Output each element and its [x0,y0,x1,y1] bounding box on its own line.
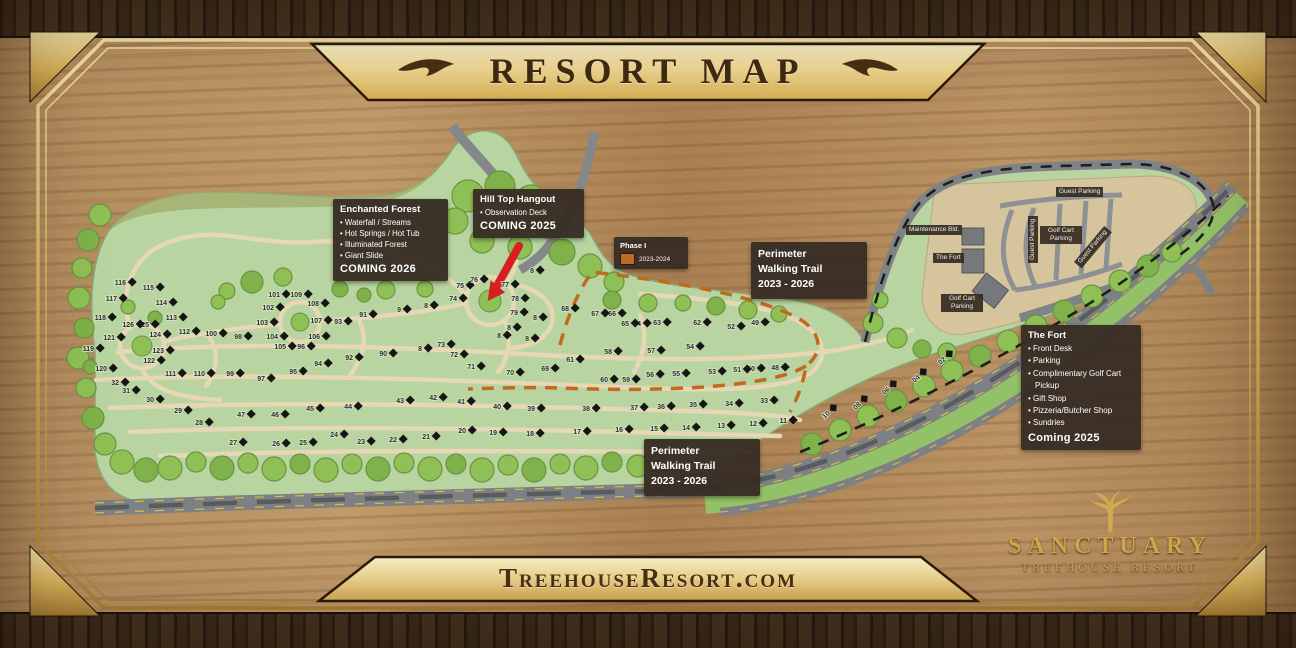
svg-text:123: 123 [152,348,164,355]
tree-icon [77,229,99,251]
svg-text:36: 36 [657,404,665,411]
svg-text:93: 93 [334,319,342,326]
svg-text:9: 9 [397,307,401,314]
svg-text:99: 99 [226,371,234,378]
svg-text:20: 20 [458,428,466,435]
page-title: RESORT MAP [312,44,984,98]
svg-text:49: 49 [751,320,759,327]
tree-icon [314,458,338,482]
callout-item: Parking [1028,355,1134,367]
tree-icon [829,419,851,441]
svg-text:114: 114 [156,300,167,307]
tree-icon [68,287,90,309]
tree-icon [332,281,348,297]
svg-text:19: 19 [489,430,497,437]
tree-icon [94,433,116,455]
tree-icon [707,297,725,315]
tree-icon [603,291,621,309]
svg-text:61: 61 [566,357,574,364]
svg-text:94: 94 [314,361,322,368]
callout-hill-top-hangout: Hill Top Hangout Observation Deck COMING… [473,189,584,238]
svg-text:8: 8 [533,315,537,322]
svg-text:70: 70 [506,370,514,377]
svg-text:76: 76 [470,277,478,284]
svg-text:116: 116 [115,280,126,287]
tree-icon [110,450,134,474]
svg-text:52: 52 [727,324,735,331]
svg-text:90: 90 [379,351,387,358]
svg-text:103: 103 [256,320,268,327]
svg-text:28: 28 [195,420,203,427]
callout-perimeter-trail-bottom: Perimeter Walking Trail 2023 - 2026 [644,439,760,496]
tree-icon [74,318,94,338]
callout-line: 2023 - 2026 [651,474,753,489]
svg-text:31: 31 [122,388,130,395]
tree-icon [550,454,570,474]
svg-text:97: 97 [257,376,265,383]
svg-text:13: 13 [717,423,725,430]
tree-icon [274,268,292,286]
tree-icon [498,455,518,475]
tree-icon [417,281,433,297]
phase-range: 2023-2024 [639,256,670,263]
svg-text:46: 46 [271,412,279,419]
tree-icon [549,239,575,265]
tree-icon [863,313,883,333]
callout-line: Walking Trail [758,262,860,277]
svg-text:43: 43 [396,398,404,405]
svg-text:120: 120 [95,366,107,373]
svg-text:115: 115 [143,285,154,292]
tree-icon [470,458,494,482]
svg-text:77: 77 [501,282,509,289]
svg-text:54: 54 [686,344,694,351]
svg-text:21: 21 [422,434,430,441]
svg-text:56: 56 [646,372,654,379]
callout-footer: COMING 2026 [340,263,441,275]
svg-text:41: 41 [457,399,465,406]
svg-text:8: 8 [424,303,428,310]
tree-icon [158,456,182,480]
tree-icon [913,340,931,358]
svg-text:48: 48 [771,365,779,372]
tree-icon [997,330,1019,352]
callout-item: Illuminated Forest [340,239,441,250]
svg-text:126: 126 [122,322,134,329]
tree-icon [89,204,111,226]
svg-text:34: 34 [725,401,733,408]
svg-text:47: 47 [237,412,245,419]
svg-text:33: 33 [760,398,768,405]
callout-item: Observation Deck [480,207,577,218]
svg-text:118: 118 [95,315,106,322]
svg-text:65: 65 [621,321,629,328]
sanctuary-logo: SANCTUARY TREEHOUSE RESORT [995,486,1225,574]
tree-icon [72,258,92,278]
tree-icon [771,306,787,322]
svg-text:14: 14 [682,425,690,432]
svg-text:59: 59 [622,377,630,384]
fort-building [962,249,984,273]
svg-text:63: 63 [653,320,661,327]
svg-text:91: 91 [359,312,367,319]
logo-tagline: TREEHOUSE RESORT [995,562,1225,574]
callout-footer: COMING 2025 [480,220,577,232]
tree-icon [1053,300,1075,322]
svg-text:8: 8 [418,346,422,353]
svg-text:79: 79 [510,310,518,317]
label-golf-cart-parking-low: Golf Cart Parking [941,294,983,312]
tree-icon [1081,285,1103,307]
label-guest-parking-vertical: Guest Parking [1028,216,1038,263]
tree-icon [366,457,390,481]
callout-title: The Fort [1028,330,1134,341]
callout-item: Sundries [1028,417,1134,429]
svg-text:92: 92 [345,355,353,362]
callout-item: Waterfall / Streams [340,217,441,228]
legend-phase-1: Phase I 2023-2024 [614,237,688,269]
svg-text:107: 107 [310,318,322,325]
svg-text:8: 8 [530,268,534,275]
svg-text:51: 51 [733,367,741,374]
callout-item: Pizzeria/Butcher Shop [1028,405,1134,417]
svg-text:30: 30 [146,397,154,404]
svg-text:16: 16 [615,427,623,434]
resort-map-poster: 0204060810111213141516171819202122232425… [0,0,1296,648]
label-guest-parking-top: Guest Parking [1056,187,1103,197]
svg-text:10: 10 [821,410,832,420]
tree-icon [872,292,888,308]
tree-icon [574,456,598,480]
phase-swatch [620,253,635,265]
loop-circle-west [132,336,152,356]
tree-icon [262,457,286,481]
svg-text:95: 95 [289,369,297,376]
tree-icon [446,454,466,474]
svg-text:8: 8 [497,333,501,340]
callout-title: Hill Top Hangout [480,194,577,205]
svg-text:109: 109 [290,292,302,299]
callout-the-fort: The Fort Front Desk Parking Complimentar… [1021,325,1141,450]
callout-item: Front Desk [1028,343,1134,355]
tree-icon [602,452,622,472]
svg-text:37: 37 [630,405,638,412]
svg-text:8: 8 [525,336,529,343]
svg-text:25: 25 [299,440,307,447]
tree-icon [522,458,546,482]
svg-text:98: 98 [234,334,242,341]
svg-text:29: 29 [174,408,182,415]
loop-circle-east [291,313,309,331]
tree-icon [639,294,657,312]
tree-icon [739,301,757,319]
svg-text:101: 101 [268,292,280,299]
svg-text:124: 124 [149,332,161,339]
svg-text:39: 39 [527,406,535,413]
logo-tree-icon [1075,486,1145,534]
svg-text:8: 8 [507,325,511,332]
callout-line: Perimeter [651,444,753,459]
svg-text:113: 113 [166,315,177,322]
svg-text:122: 122 [143,358,155,365]
tree-icon [394,453,414,473]
svg-text:32: 32 [111,380,119,387]
svg-text:27: 27 [229,440,237,447]
tree-icon [377,281,395,299]
svg-text:12: 12 [749,421,757,428]
svg-text:67: 67 [591,311,599,318]
svg-text:105: 105 [274,344,286,351]
svg-text:108: 108 [307,301,319,308]
tree-icon [357,288,371,302]
tree-icon [290,454,310,474]
tree-icon [82,407,104,429]
tree-icon [241,271,263,293]
svg-text:53: 53 [708,369,716,376]
svg-text:57: 57 [647,348,655,355]
svg-text:121: 121 [103,335,115,342]
label-the-fort: The Fort [933,253,964,263]
tree-icon [186,452,206,472]
svg-text:62: 62 [693,320,701,327]
callout-title: Enchanted Forest [340,204,441,215]
svg-text:119: 119 [83,346,94,353]
svg-text:60: 60 [600,377,608,384]
tree-icon [1109,270,1131,292]
svg-text:102: 102 [262,305,274,312]
tree-icon [342,454,362,474]
svg-text:69: 69 [541,366,549,373]
svg-text:15: 15 [650,426,658,433]
svg-text:42: 42 [429,395,437,402]
tree-icon [418,457,442,481]
svg-text:71: 71 [467,364,475,371]
svg-text:45: 45 [306,406,314,413]
svg-text:106: 106 [308,334,320,341]
svg-text:11: 11 [780,418,788,425]
svg-text:111: 111 [165,371,176,378]
svg-text:110: 110 [194,371,205,378]
svg-text:66: 66 [608,311,616,318]
tree-icon [76,378,96,398]
svg-text:100: 100 [205,331,217,338]
svg-text:26: 26 [272,441,280,448]
svg-text:78: 78 [511,296,519,303]
tree-icon [887,328,907,348]
logo-name: SANCTUARY [995,533,1225,560]
svg-text:35: 35 [689,402,697,409]
callout-item: Gift Shop [1028,393,1134,405]
tree-icon [211,295,225,309]
callout-line: Walking Trail [651,459,753,474]
resort-url: TreehouseResort.com [322,556,974,600]
svg-text:73: 73 [437,342,445,349]
tree-icon [675,295,691,311]
svg-text:112: 112 [179,329,190,336]
callout-enchanted-forest: Enchanted Forest Waterfall / Streams Hot… [333,199,448,281]
svg-text:44: 44 [344,404,352,411]
callout-line: 2023 - 2026 [758,277,860,292]
callout-footer: Coming 2025 [1028,432,1134,444]
legend-title: Phase I [620,241,682,250]
callout-perimeter-trail-top: Perimeter Walking Trail 2023 - 2026 [751,242,867,299]
svg-text:40: 40 [493,404,501,411]
svg-text:55: 55 [672,371,680,378]
tree-icon [238,453,258,473]
site-marker-10: 10 [820,401,840,420]
label-golf-cart-parking-mid: Golf Cart Parking [1040,226,1082,244]
svg-text:74: 74 [449,296,457,303]
tree-icon [210,456,234,480]
svg-text:68: 68 [561,306,569,313]
callout-item: Complimentary Golf Cart Pickup [1028,368,1134,393]
svg-text:96: 96 [297,344,305,351]
label-maintenance-bld: Maintenance Bld. [906,225,962,235]
svg-text:22: 22 [389,437,397,444]
maintenance-building [962,228,984,245]
svg-text:75: 75 [456,283,464,290]
svg-text:38: 38 [582,406,590,413]
svg-text:24: 24 [330,432,338,439]
svg-text:104: 104 [266,334,278,341]
svg-text:17: 17 [573,429,581,436]
tree-icon [134,458,158,482]
svg-text:18: 18 [526,431,534,438]
callout-line: Perimeter [758,247,860,262]
callout-item: Hot Springs / Hot Tub [340,228,441,239]
svg-text:72: 72 [450,352,458,359]
svg-text:117: 117 [106,296,117,303]
svg-text:23: 23 [357,439,365,446]
svg-text:58: 58 [604,349,612,356]
callout-item: Giant Slide [340,250,441,261]
